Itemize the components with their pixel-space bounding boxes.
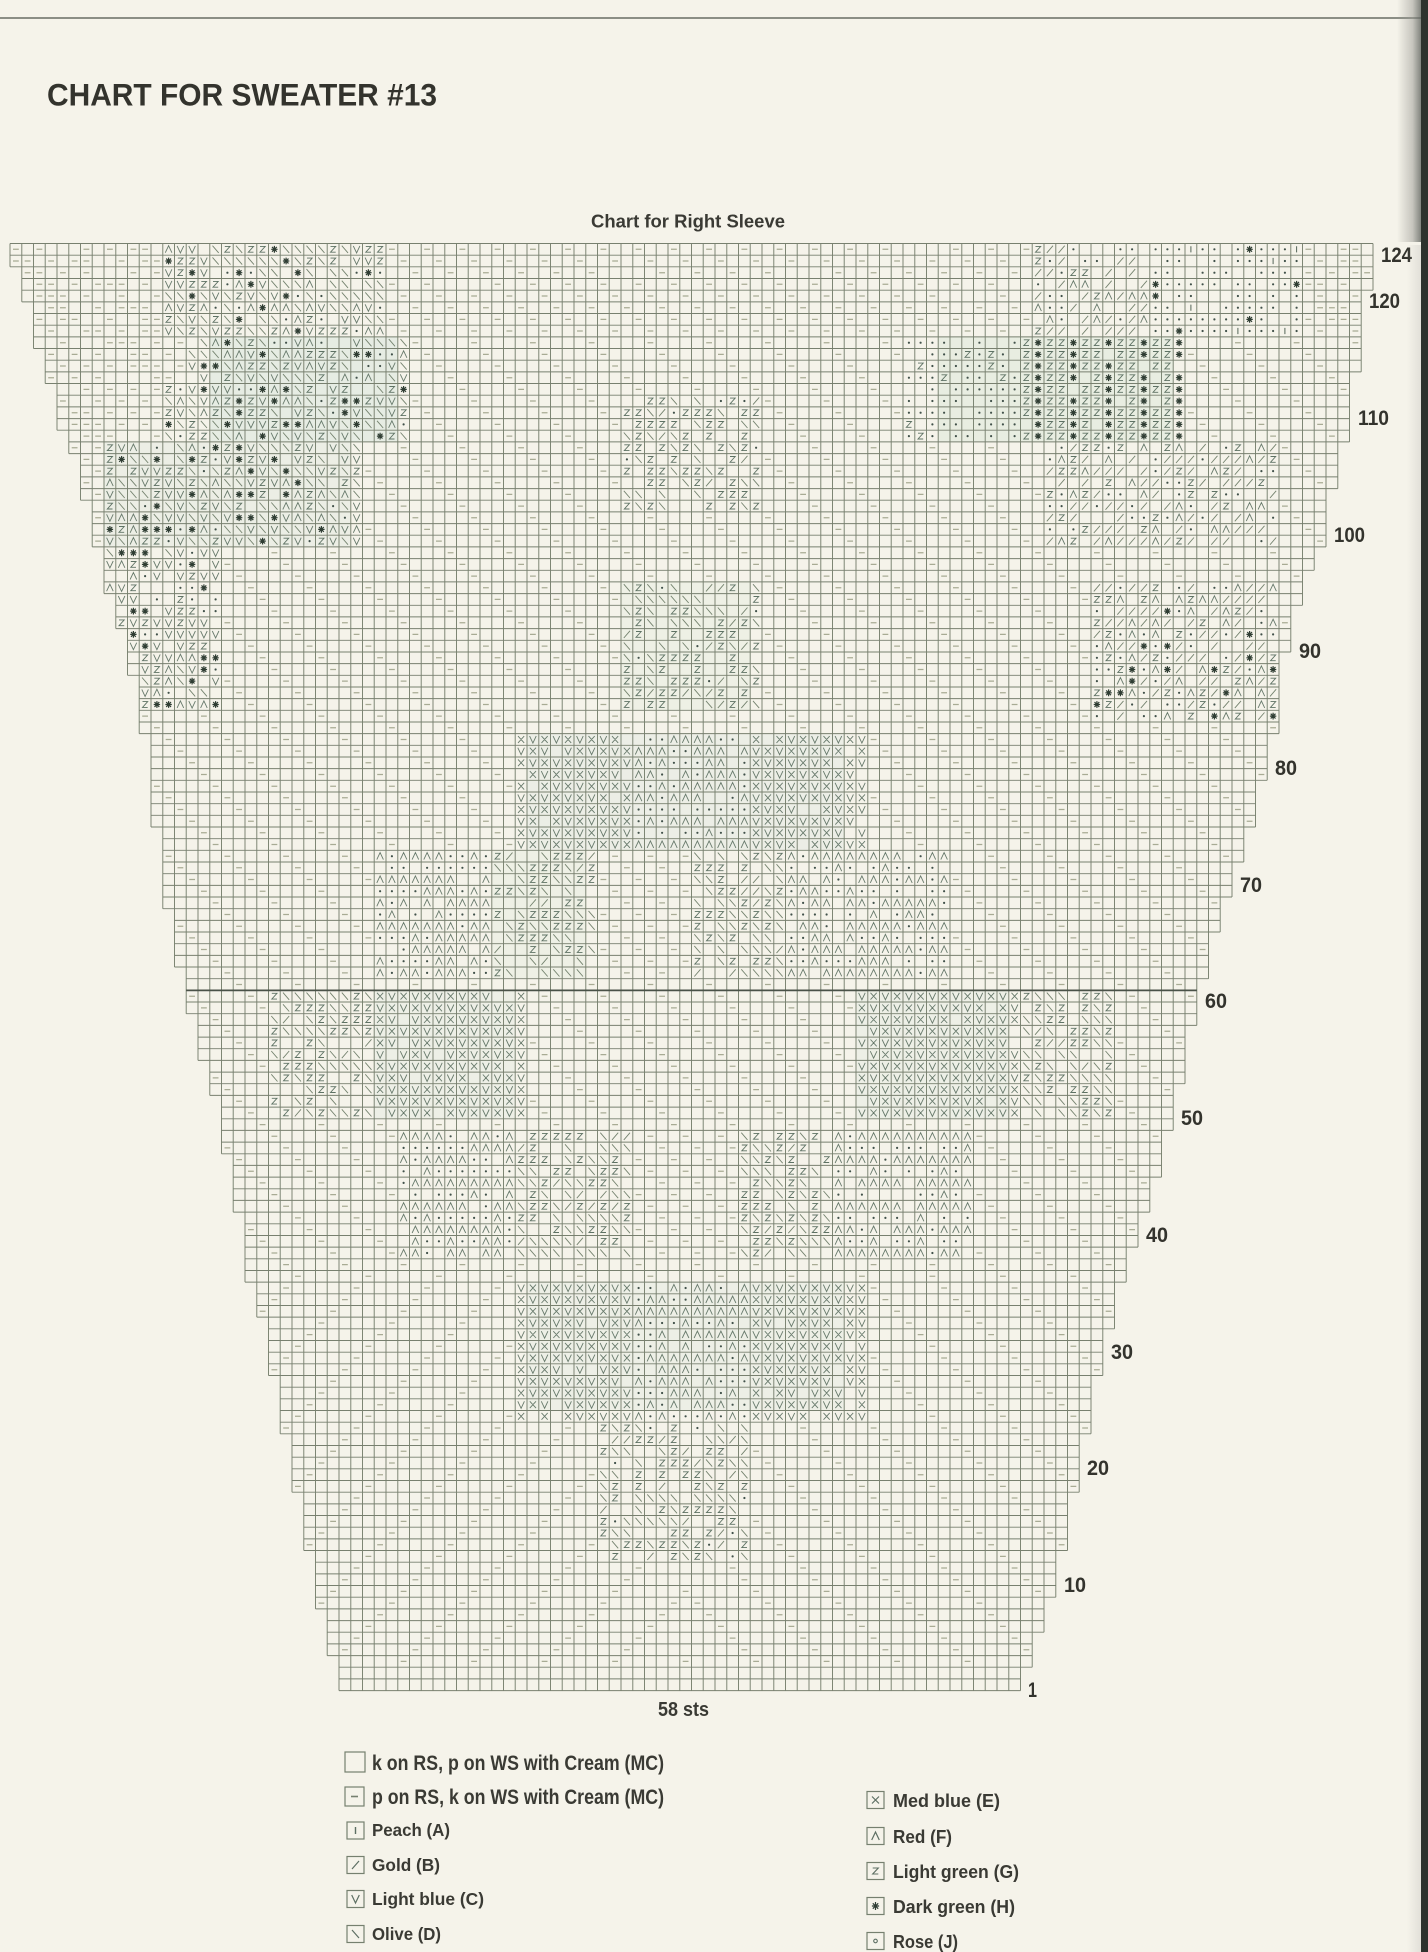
svg-text:58 sts: 58 sts [658, 1699, 709, 1721]
svg-text:20: 20 [1087, 1457, 1109, 1480]
svg-text:Rose (J): Rose (J) [893, 1931, 958, 1952]
svg-text:70: 70 [1240, 874, 1262, 897]
svg-text:30: 30 [1111, 1341, 1133, 1364]
svg-text:Light blue (C): Light blue (C) [372, 1889, 484, 1909]
svg-text:k on RS, p on WS with Cream (M: k on RS, p on WS with Cream (MC) [372, 1751, 664, 1775]
svg-text:10: 10 [1064, 1574, 1086, 1597]
svg-text:CHART FOR SWEATER #13: CHART FOR SWEATER #13 [47, 77, 437, 113]
svg-text:110: 110 [1358, 407, 1389, 430]
svg-text:40: 40 [1146, 1224, 1168, 1247]
svg-text:Red (F): Red (F) [893, 1826, 952, 1847]
svg-text:1: 1 [1028, 1679, 1037, 1702]
svg-text:Peach (A): Peach (A) [372, 1820, 450, 1840]
svg-text:Med blue (E): Med blue (E) [893, 1790, 1000, 1811]
svg-text:100: 100 [1334, 524, 1365, 547]
svg-text:Light green (G): Light green (G) [893, 1861, 1019, 1882]
svg-text:80: 80 [1275, 757, 1297, 780]
svg-text:Gold (B): Gold (B) [372, 1855, 440, 1875]
svg-text:50: 50 [1181, 1107, 1203, 1130]
svg-text:90: 90 [1299, 640, 1321, 663]
svg-text:Olive (D): Olive (D) [372, 1924, 441, 1944]
svg-text:Dark green (H): Dark green (H) [893, 1896, 1015, 1917]
svg-text:120: 120 [1369, 290, 1400, 313]
svg-text:p on RS, k on WS with Cream (M: p on RS, k on WS with Cream (MC) [372, 1785, 664, 1809]
svg-text:60: 60 [1205, 990, 1227, 1013]
svg-text:Chart for Right Sleeve: Chart for Right Sleeve [591, 211, 785, 232]
